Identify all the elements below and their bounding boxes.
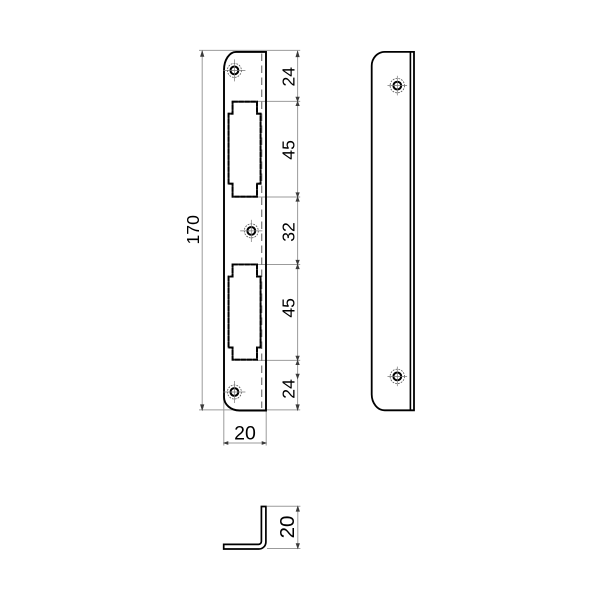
svg-text:24: 24	[278, 67, 298, 87]
svg-text:45: 45	[278, 140, 298, 160]
svg-text:45: 45	[278, 298, 298, 318]
svg-text:170: 170	[183, 215, 203, 245]
svg-text:24: 24	[278, 379, 298, 399]
svg-text:32: 32	[278, 222, 298, 242]
svg-text:20: 20	[234, 422, 256, 444]
svg-text:20: 20	[276, 516, 299, 539]
